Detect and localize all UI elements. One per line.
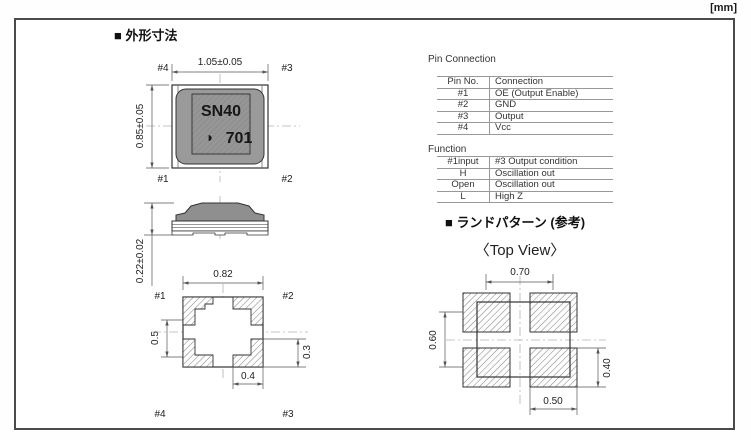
top-view-drawing: SN40 ◗ 701 #4 #3 #1 #2 1.05±0.05: [135, 57, 300, 185]
connection-cell: Output: [490, 111, 614, 123]
input-cell: Open: [437, 180, 490, 192]
dim-bottom-width: 0.82: [213, 269, 233, 280]
dim-bottom-right: 0.3: [302, 345, 313, 359]
output-condition-cell: Oscillation out: [490, 180, 614, 192]
table-row: #1 OE (Output Enable): [437, 88, 613, 100]
land-pattern-heading: ■ ランドパターン (参考): [445, 212, 585, 231]
height-dimension: [146, 85, 169, 168]
thickness-dimension: [144, 203, 174, 286]
pin-no-cell: #1: [437, 88, 490, 100]
dim-package-height: 0.85±0.05: [135, 103, 146, 148]
pin-connection-title: Pin Connection: [428, 54, 496, 65]
top-view-subheading: 〈Top View〉: [470, 239, 570, 260]
marking-model-text: SN40: [201, 103, 241, 120]
connection-cell: GND: [490, 100, 614, 112]
pin-connection-table: Pin No. Connection #1 OE (Output Enable)…: [437, 76, 613, 135]
bottom-view-drawing: #1 #2 #4 #3 0.82 0.5: [150, 269, 313, 420]
input-cell: H: [437, 168, 490, 180]
manufacturer-logo-icon: ◗: [206, 129, 214, 145]
marking-date-code: 701: [226, 130, 253, 147]
table-header-row: #1input #3 Output condition: [437, 157, 613, 169]
output-condition-cell: High Z: [490, 191, 614, 203]
dim-package-thickness: 0.22±0.02: [135, 238, 146, 283]
table-row: #3 Output: [437, 111, 613, 123]
pin-label-br: #3: [282, 409, 294, 420]
function-table: #1input #3 Output condition H Oscillatio…: [437, 156, 613, 203]
land-pad-bl: [463, 348, 510, 387]
datasheet-page: [mm]: [0, 0, 751, 440]
table-header-row: Pin No. Connection: [437, 77, 613, 89]
side-view-lid: [176, 203, 264, 221]
function-title: Function: [428, 144, 466, 155]
output-condition-header: #3 Output condition: [490, 157, 614, 169]
output-condition-cell: Oscillation out: [490, 168, 614, 180]
dimension-drawings: SN40 ◗ 701 #4 #3 #1 #2 1.05±0.05: [0, 0, 751, 440]
pin-label-tr: #3: [281, 63, 293, 74]
dim-package-width: 1.05±0.05: [198, 57, 243, 68]
connection-cell: Vcc: [490, 123, 614, 135]
dim-land-right: 0.40: [602, 358, 613, 378]
land-pattern-drawing: 0.70 0.60 0.40: [428, 267, 613, 415]
side-view-bottom-pads: [172, 231, 268, 235]
dim-bottom-pad: 0.4: [241, 371, 255, 382]
pin-no-cell: #4: [437, 123, 490, 135]
input-header: #1input: [437, 157, 490, 169]
dim-bottom-left: 0.5: [150, 331, 161, 345]
dim-land-top: 0.70: [510, 267, 530, 278]
connection-header: Connection: [490, 77, 614, 89]
table-row: Open Oscillation out: [437, 180, 613, 192]
side-view-base: [172, 221, 268, 231]
pin-label-tl: #1: [154, 291, 166, 302]
dim-land-left: 0.60: [428, 330, 439, 350]
land-pad-tl: [463, 293, 510, 332]
pin-label-bl: #4: [154, 409, 166, 420]
dim-land-bottom: 0.50: [543, 396, 563, 407]
table-row: H Oscillation out: [437, 168, 613, 180]
pin-label-bl: #1: [157, 174, 169, 185]
table-row: #4 Vcc: [437, 123, 613, 135]
pin-label-br: #2: [281, 174, 293, 185]
table-row: #2 GND: [437, 100, 613, 112]
table-row: L High Z: [437, 191, 613, 203]
connection-cell: OE (Output Enable): [490, 88, 614, 100]
input-cell: L: [437, 191, 490, 203]
pad-height-dimension: [263, 339, 306, 367]
pin-no-header: Pin No.: [437, 77, 490, 89]
side-view-drawing: 0.22±0.02: [135, 196, 268, 286]
pin-label-tl: #4: [157, 63, 169, 74]
outline-heading: ■ 外形寸法: [114, 25, 177, 44]
left-pitch-dimension: [161, 320, 183, 357]
land-vpitch-dimension: [439, 312, 463, 367]
pin-no-cell: #2: [437, 100, 490, 112]
pin-label-tr: #2: [282, 291, 294, 302]
pin-no-cell: #3: [437, 111, 490, 123]
